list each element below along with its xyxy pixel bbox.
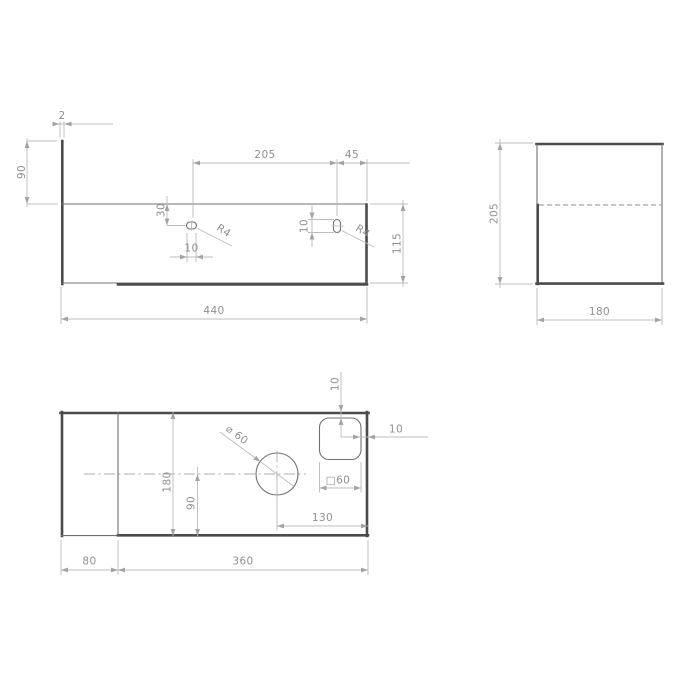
dim-label-cutout-size: □60 (326, 475, 350, 487)
dim-label-left-slot-length: 10 (184, 243, 198, 255)
dim-label-plan-depth: 180 (162, 471, 174, 492)
dim-label-right-slot-length: 10 (299, 219, 311, 233)
front-view: 2 90 205 45 30 (16, 110, 410, 324)
dim-label-hole-diameter: ⌀ 60 (223, 423, 250, 447)
dim-label-hole-to-edge: 130 (312, 512, 333, 524)
dim-front-width: 440 (61, 287, 367, 324)
dim-hole-to-bottom: 90 (186, 467, 200, 536)
dim-label-cutout-top-offset: 10 (330, 377, 342, 391)
dim-cutout-size: □60 (320, 462, 362, 493)
dim-plan-widths: 80 360 (61, 540, 368, 575)
dim-label-left-slot-radius: R4 (214, 222, 233, 240)
dim-cutout-side-offset: 10 (341, 424, 428, 440)
drawing-canvas: 2 90 205 45 30 (0, 0, 685, 685)
dim-back-thickness: 2 (53, 110, 114, 138)
dim-label-slot-spacing: 205 (254, 149, 275, 161)
plan-view: 10 10 □60 ⌀ 60 130 (61, 372, 429, 575)
dim-hole-diameter: ⌀ 60 (220, 423, 294, 487)
dim-label-slot-top-offset: 30 (156, 203, 168, 217)
dim-left-slot: 10 R4 (170, 222, 233, 262)
technical-drawing-page: 2 90 205 45 30 (0, 0, 685, 685)
dim-label-side-height: 205 (489, 203, 501, 224)
dim-label-hole-to-bottom: 90 (186, 496, 198, 510)
dim-side-depth: 180 (537, 288, 662, 325)
dim-back-height: 90 (16, 138, 58, 207)
side-view: 205 180 (489, 139, 664, 325)
dim-label-slot-edge-offset: 45 (345, 149, 359, 161)
dim-slot-top-offset: 30 (156, 196, 187, 226)
dim-plan-depth: 180 (162, 412, 176, 536)
dim-cutout-top-offset: 10 (330, 372, 344, 437)
dim-label-body-width: 360 (232, 556, 253, 568)
dim-label-cutout-side-offset: 10 (389, 424, 403, 436)
dim-slot-spacing: 205 45 (193, 149, 410, 218)
dim-label-thickness: 2 (58, 110, 65, 122)
dim-label-return-width: 80 (82, 556, 96, 568)
dim-front-height: 115 (370, 200, 408, 287)
dim-label-side-depth: 180 (589, 306, 610, 318)
dim-label-front-width: 440 (203, 305, 224, 317)
dim-label-back-height: 90 (16, 165, 28, 179)
dim-side-height: 205 (489, 139, 534, 288)
dim-label-front-height: 115 (392, 233, 404, 254)
